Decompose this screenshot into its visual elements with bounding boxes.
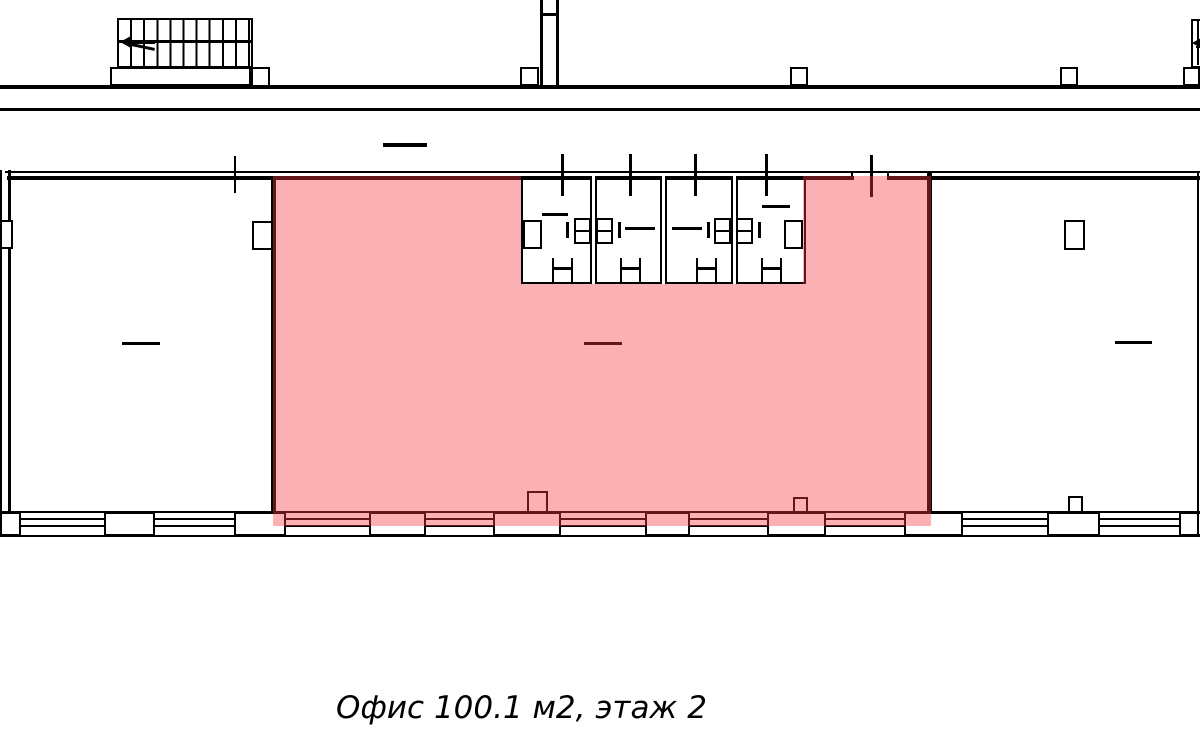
stair-landing [110,67,251,86]
stair-right-landing [1183,67,1200,86]
dimension-dash-corridor [383,143,427,147]
building-right-edge [1197,171,1200,536]
riser-tick-wc-1 [561,154,564,196]
window-2 [153,511,236,537]
corridor-pier-1 [520,67,539,86]
staircase-icon [117,18,253,68]
window-1 [19,511,106,537]
toilet-icon-2 [596,218,613,244]
toilet-icon-3 [714,218,731,244]
corridor-wall-lower [0,108,1200,111]
sink-icon-1 [552,258,573,284]
sink-icon-4 [761,258,782,284]
toilet-dash-2 [625,227,655,230]
toilet-dash-1 [542,213,568,216]
riser-tick-wc-3 [694,154,697,196]
pilaster-left-outer [0,220,13,249]
toilet-tick-4 [758,222,761,238]
riser-tick-wc-2 [629,154,632,196]
window-9 [1098,511,1181,537]
stair-landing-post [251,67,270,87]
riser-tick-wc-4 [765,154,768,196]
toilet-dash-3 [672,227,702,230]
corridor-pier-2 [790,67,808,86]
shaft-joint [540,13,559,16]
toilet-dash-4 [762,205,790,208]
corridor-wall-upper [0,85,1200,89]
wc-door-niche-left [523,220,542,249]
toilet-tick-2 [618,222,621,238]
main-top-wall-right-segment [889,176,1200,181]
pilaster-left-room-right [252,221,273,250]
caption: Офис 100.1 м2, этаж 2 [336,690,707,726]
corridor-pier-3 [1060,67,1078,86]
toilet-icon-1 [574,218,591,244]
sink-icon-2 [620,258,641,284]
wc-divider-2 [660,176,667,284]
riser-tick-left-room [234,156,236,193]
floor-plan: Офис 100.1 м2, этаж 2 [0,0,1200,745]
dimension-dash-left-room [122,342,160,345]
window-8 [961,511,1049,537]
dimension-dash-right-room [1115,341,1152,344]
main-top-thin-line [5,171,1200,173]
wc-door-niche-right [784,220,803,249]
stair-right-arrow-shaft [1196,46,1200,48]
sink-icon-3 [696,258,717,284]
toilet-tick-1 [566,222,569,238]
toilet-icon-4 [736,218,753,244]
toilet-tick-3 [707,222,710,238]
column-right-room [1064,220,1085,250]
